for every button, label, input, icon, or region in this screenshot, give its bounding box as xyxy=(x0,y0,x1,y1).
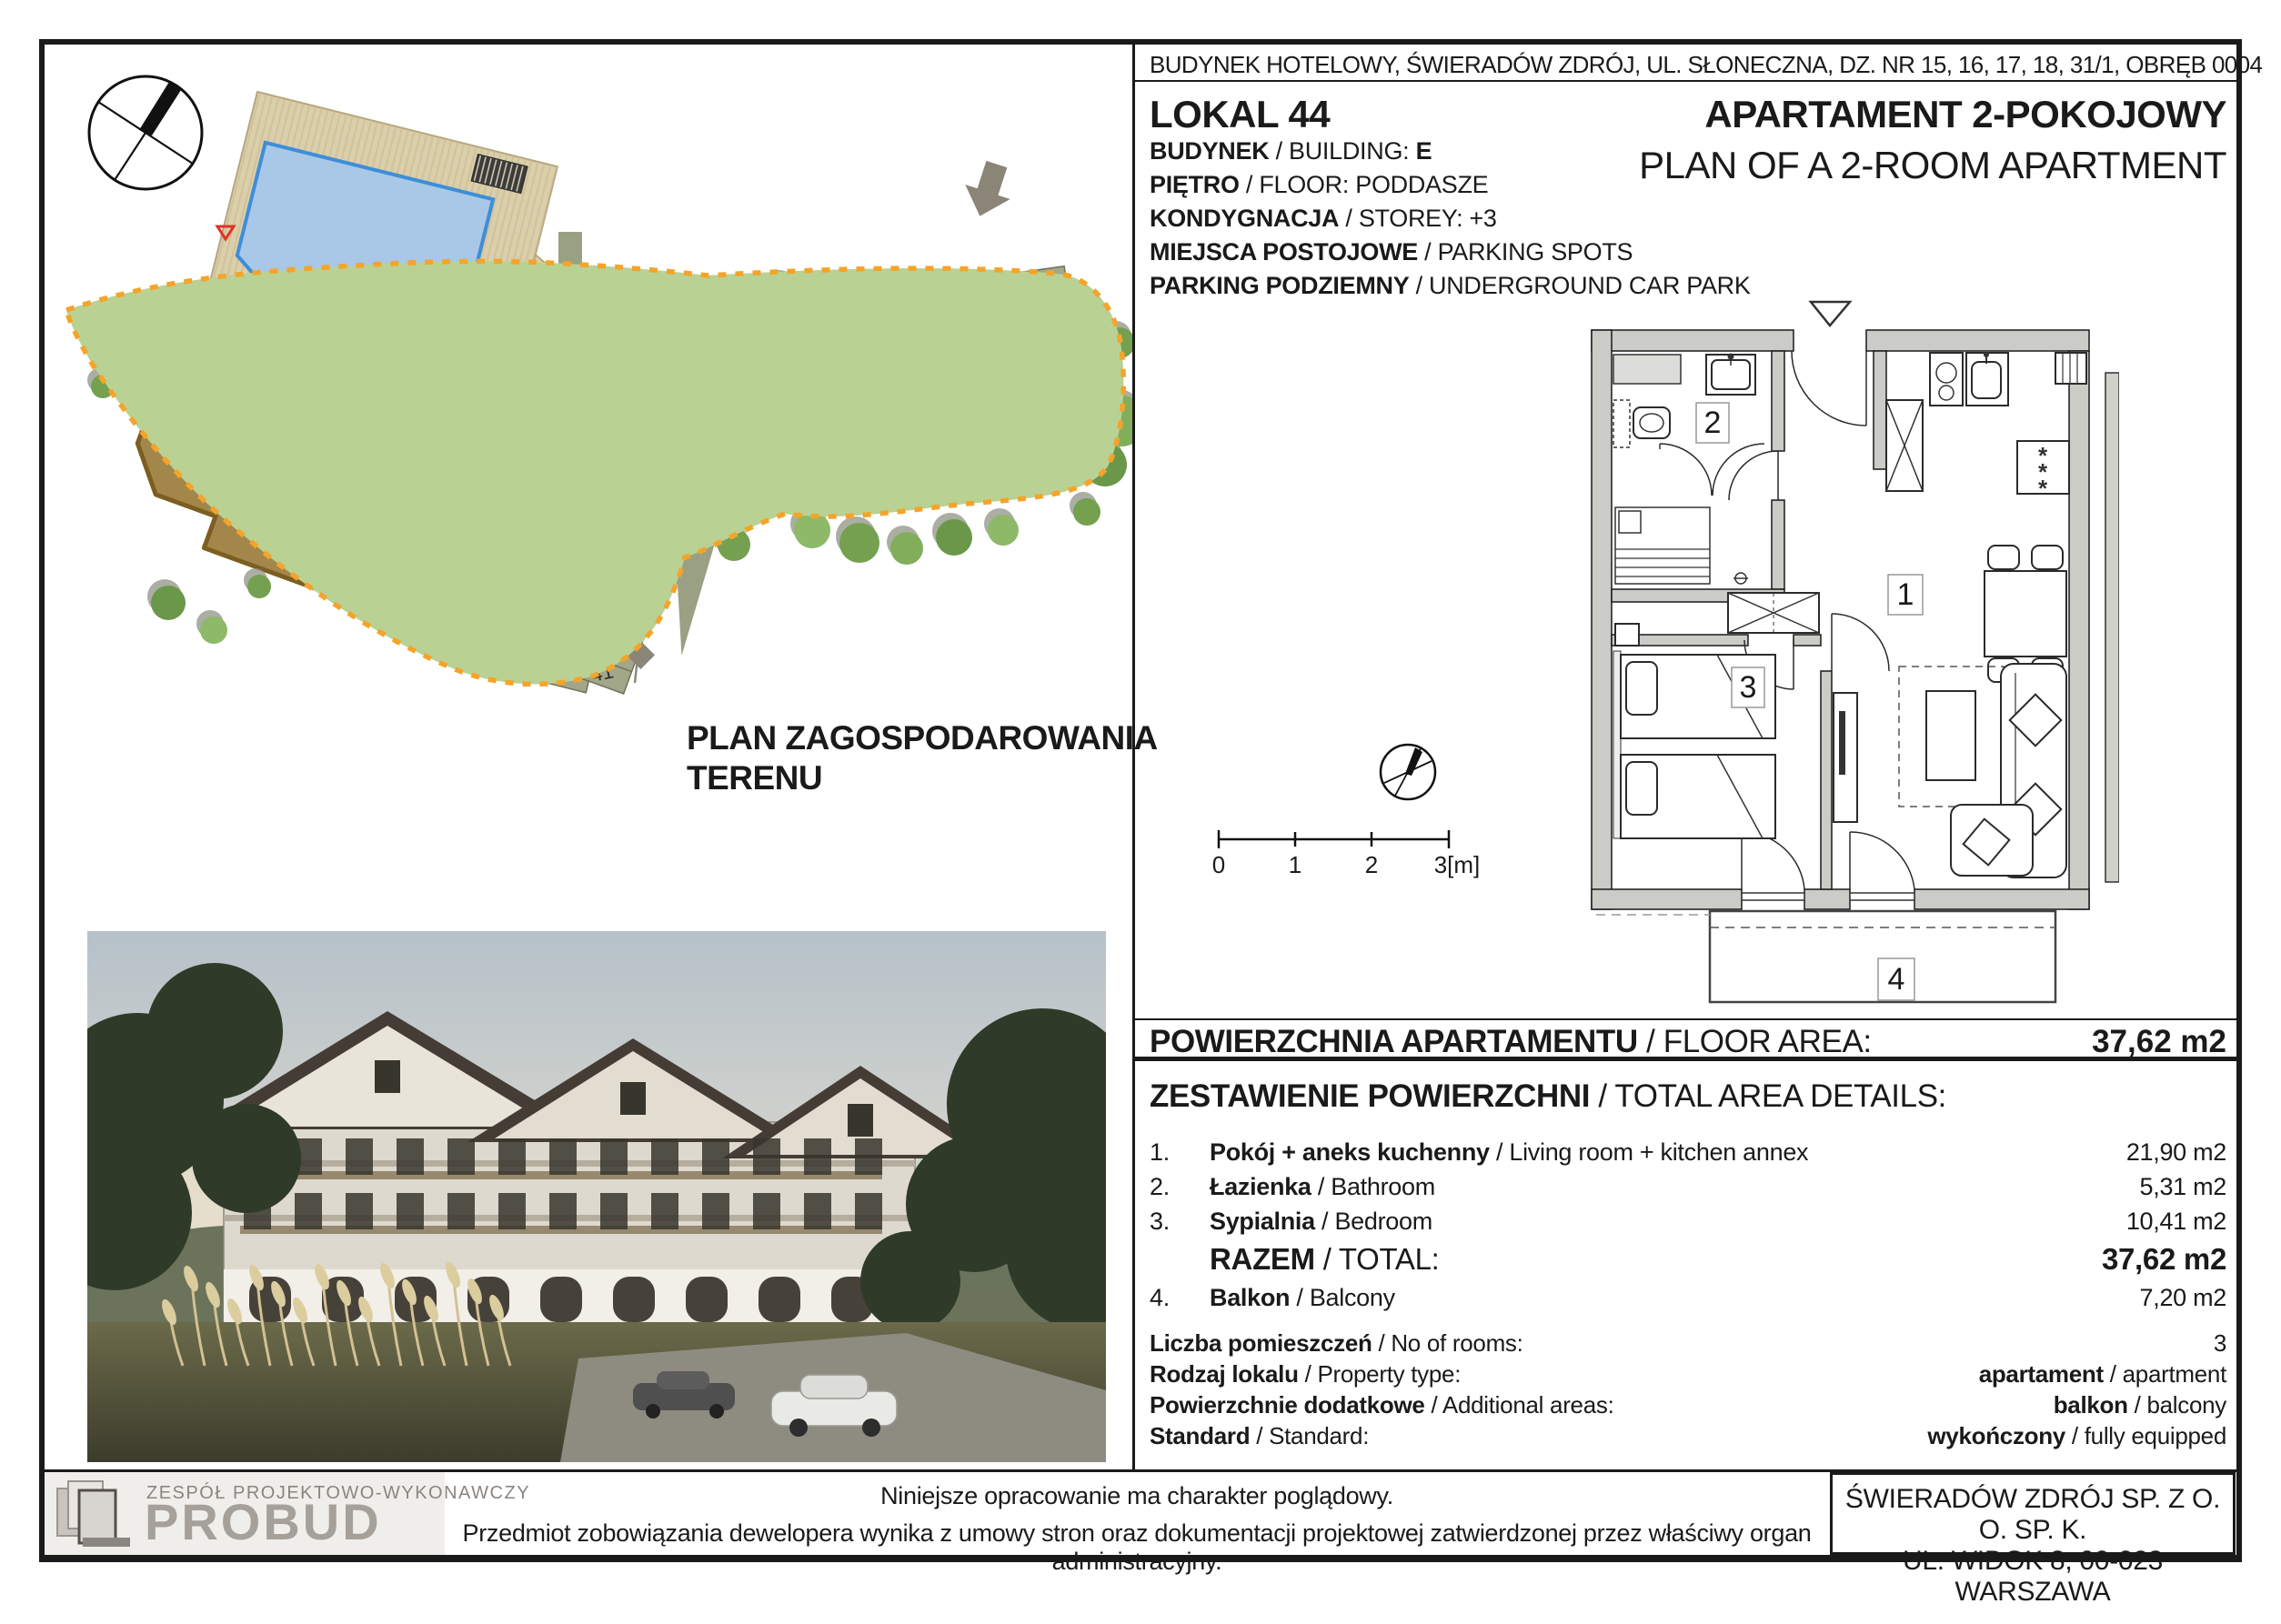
dining-set xyxy=(1985,546,2066,682)
probud-logo-icon xyxy=(55,1479,139,1550)
building-photo xyxy=(87,931,1106,1462)
floor-plan-drawing: * * * xyxy=(1137,300,2119,1018)
developer-name: ŚWIERADÓW ZDRÓJ SP. Z O. O. SP. K. xyxy=(1833,1484,2233,1546)
hall-wardrobe xyxy=(1728,593,1819,633)
kitchen-fixtures: * * * xyxy=(1886,352,2086,502)
chair-icon xyxy=(1988,546,2019,569)
area-details-heading: ZESTAWIENIE POWIERZCHNI / TOTAL AREA DET… xyxy=(1150,1078,1946,1115)
svg-text:*: * xyxy=(2038,475,2048,502)
area-row: 1. Pokój + aneks kuchenny / Living room … xyxy=(1150,1138,2226,1173)
footer-note-2: Przedmiot zobowiązania dewelopera wynika… xyxy=(455,1519,1819,1576)
developer-address-box: ŚWIERADÓW ZDRÓJ SP. Z O. O. SP. K. UL. W… xyxy=(1830,1472,2236,1555)
room-label-3: 3 xyxy=(1740,670,1757,705)
room-label-1: 1 xyxy=(1897,577,1914,612)
floor-area-label: POWIERZCHNIA APARTAMENTU / FLOOR AREA: xyxy=(1150,1024,1872,1060)
area-row: 3. Sypialnia / Bedroom 10,41 m2 xyxy=(1150,1208,2226,1242)
pillow-icon xyxy=(1626,762,1657,815)
footer-note-1: Niniejsze opracowanie ma charakter poglą… xyxy=(455,1482,1819,1510)
toilet-icon xyxy=(1633,407,1670,438)
headboard-strip xyxy=(1613,651,1621,838)
area-row: RAZEM / TOTAL: 37,62 m2 xyxy=(1150,1242,2226,1284)
area-row: 4. Balkon / Balcony 7,20 m2 xyxy=(1150,1284,2226,1318)
scale-tick-0: 0 xyxy=(1212,851,1225,878)
unit-detail-row: KONDYGNACJA / STOREY: +3 xyxy=(1150,205,1751,238)
cistern-icon xyxy=(1613,400,1630,447)
area-row: 2. Łazienka / Bathroom 5,31 m2 xyxy=(1150,1173,2226,1208)
entrance-arrow-icon xyxy=(1811,302,1850,326)
site-entry-arrow-icon xyxy=(958,157,1020,224)
scale-tick-3: 3[m] xyxy=(1434,851,1481,878)
location-line: BUDYNEK HOTELOWY, ŚWIERADÓW ZDRÓJ, UL. S… xyxy=(1150,51,2262,79)
developer-address: UL. WIDOK 8, 00-023 WARSZAWA xyxy=(1833,1546,2233,1608)
area-details-table: 1. Pokój + aneks kuchenny / Living room … xyxy=(1150,1138,2226,1318)
living-room-furniture xyxy=(1834,664,2066,877)
frame-right xyxy=(2236,39,2242,1562)
tv-icon xyxy=(1839,711,1845,775)
site-boundary-dashed xyxy=(66,261,1123,684)
compass-icon xyxy=(89,76,202,189)
floor-area-value: 37,62 m2 xyxy=(2092,1024,2226,1060)
header-rule xyxy=(1135,80,2236,82)
property-info-table: Liczba pomieszczeń / No of rooms: 3 Rodz… xyxy=(1150,1329,2226,1453)
nightstand-icon xyxy=(1615,624,1639,646)
logo-name: PROBUD xyxy=(145,1499,382,1545)
coffee-table-icon xyxy=(1926,691,1975,780)
unit-details: BUDYNEK / BUILDING: E PIĘTRO / FLOOR: PO… xyxy=(1150,137,1751,306)
pillow-icon xyxy=(1626,662,1657,715)
unit-detail-row: MIEJSCA POSTOJOWE / PARKING SPOTS xyxy=(1150,238,1751,272)
logo-cell: ZESPÓŁ PROJEKTOWO-WYKONAWCZY PROBUD xyxy=(45,1472,445,1555)
scale-tick-1: 1 xyxy=(1289,851,1301,878)
vent-icon xyxy=(2055,353,2086,384)
stove-icon xyxy=(1930,353,1963,406)
unit-detail-row: BUDYNEK / BUILDING: E xyxy=(1150,137,1751,171)
bathroom-fixtures xyxy=(1613,354,1764,585)
plan-sheet: BUDYNEK HOTELOWY, ŚWIERADÓW ZDRÓJ, UL. S… xyxy=(0,0,2281,1624)
site-plan-title: PLAN ZAGOSPODAROWANIA TERENU xyxy=(687,718,1158,798)
apartment-title-pl: APARTAMENT 2-POKOJOWY xyxy=(1408,93,2226,136)
property-info-row: Standard / Standard: wykończony / fully … xyxy=(1150,1422,2226,1453)
property-info-row: Liczba pomieszczeń / No of rooms: 3 xyxy=(1150,1329,2226,1360)
shower-door-icon xyxy=(1660,444,1712,496)
property-info-row: Powierzchnie dodatkowe / Additional area… xyxy=(1150,1391,2226,1422)
chair-icon xyxy=(2032,546,2063,569)
property-info-row: Rodzaj lokalu / Property type: apartamen… xyxy=(1150,1360,2226,1391)
bedroom-furniture xyxy=(1613,624,1775,838)
room-label-4: 4 xyxy=(1888,962,1905,997)
scale-bar: 0 1 2 3[m] xyxy=(1212,830,1481,878)
room-label-2: 2 xyxy=(1704,406,1722,440)
compass-icon xyxy=(1381,745,1435,799)
balcony xyxy=(1596,911,2055,1002)
area-strip-top-rule xyxy=(1135,1018,2236,1020)
dining-table-icon xyxy=(1985,571,2066,657)
scale-tick-2: 2 xyxy=(1365,851,1378,878)
unit-detail-row: PIĘTRO / FLOOR: PODDASZE xyxy=(1150,171,1751,205)
unit-title: LOKAL 44 xyxy=(1150,93,1330,136)
washer-icon xyxy=(1613,355,1681,384)
bench-icon xyxy=(1615,507,1710,584)
